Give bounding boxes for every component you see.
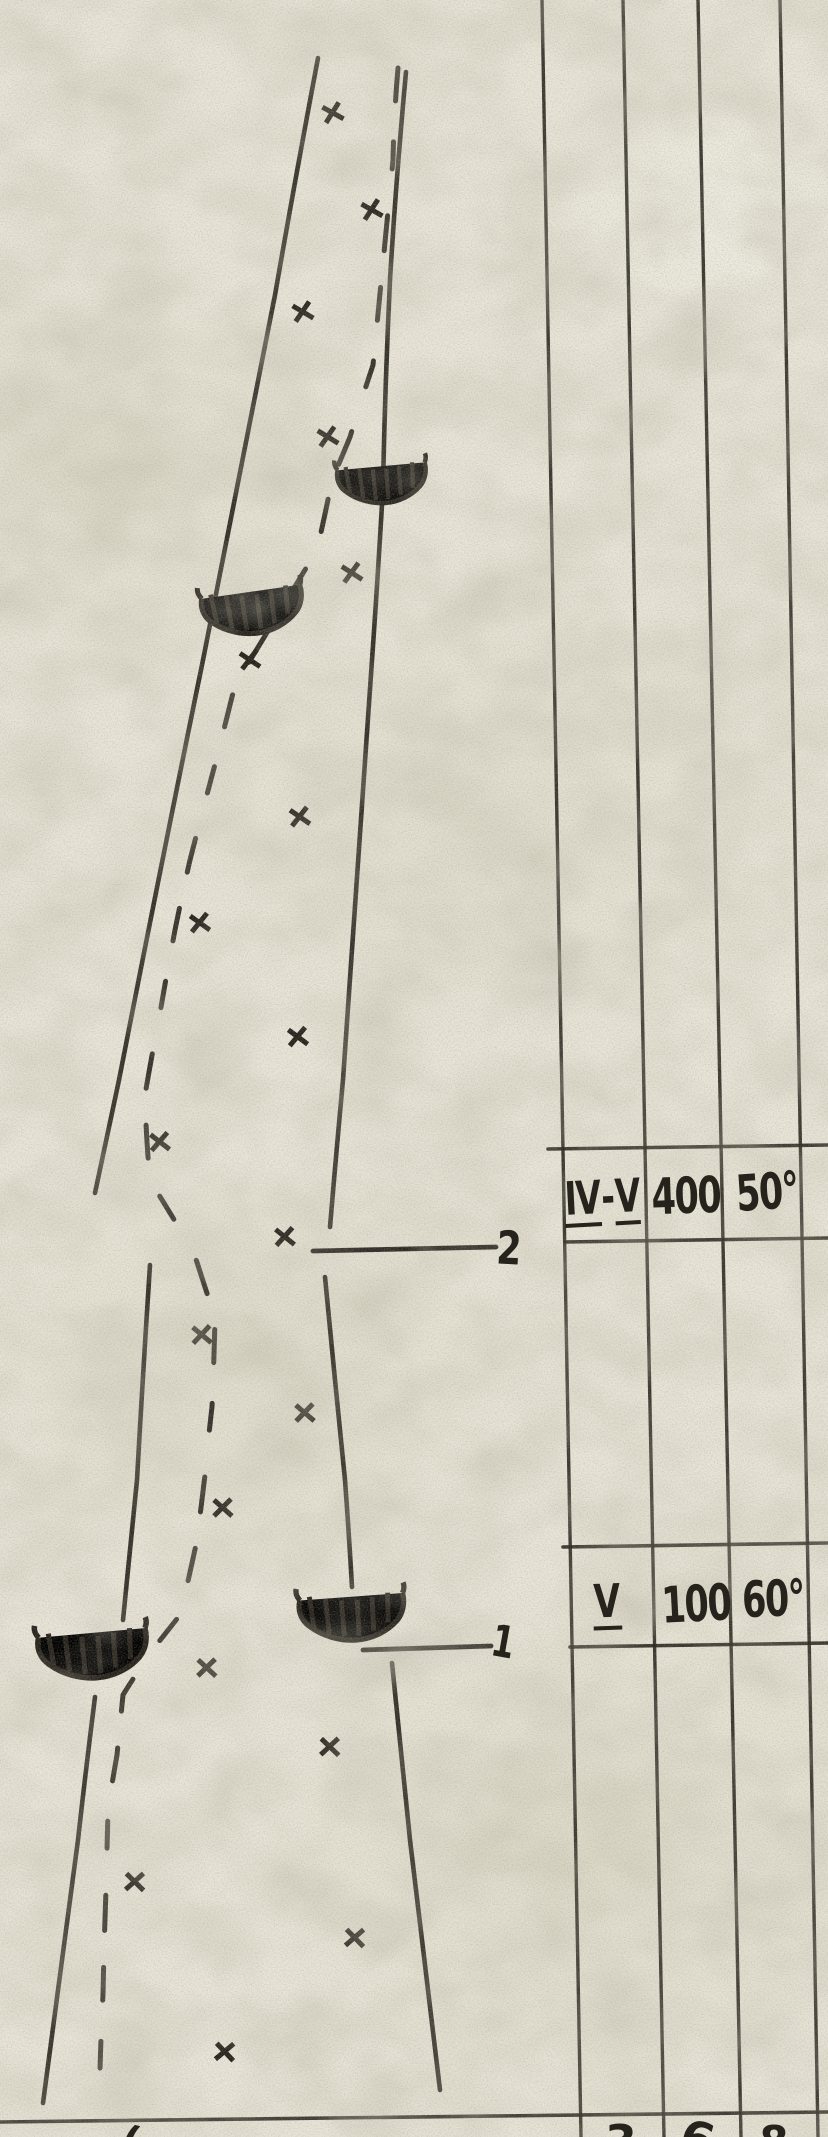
row2-angle-cell: 60° [741,1573,805,1625]
row1-angle-cell: 50° [734,1165,799,1219]
scanned-geological-sketch-page: 2 1 IV-V 400 50° V 100 60° ( 3 6 8 [0,0,828,2137]
row2-zone-numeral: V [592,1578,622,1631]
row1-zone-cell: IV-V [563,1172,642,1228]
cutoff-fragment-col1: 3 [603,2121,639,2137]
row2-distance-cell: 100 [660,1577,731,1631]
row1-zone-numeral-a: IV [563,1174,602,1228]
cutoff-fragment-col2: 6 [677,2118,717,2137]
row1-zone-numeral-b: V [613,1172,641,1225]
cutoff-fragment-paren: ( [122,2123,154,2137]
row1-distance-cell: 400 [651,1170,722,1222]
cutoff-fragment-col3: 8 [757,2122,791,2137]
marker-label-2: 2 [495,1224,522,1271]
paper-texture-overlay [0,0,828,2137]
row2-zone-cell: V [592,1578,622,1631]
